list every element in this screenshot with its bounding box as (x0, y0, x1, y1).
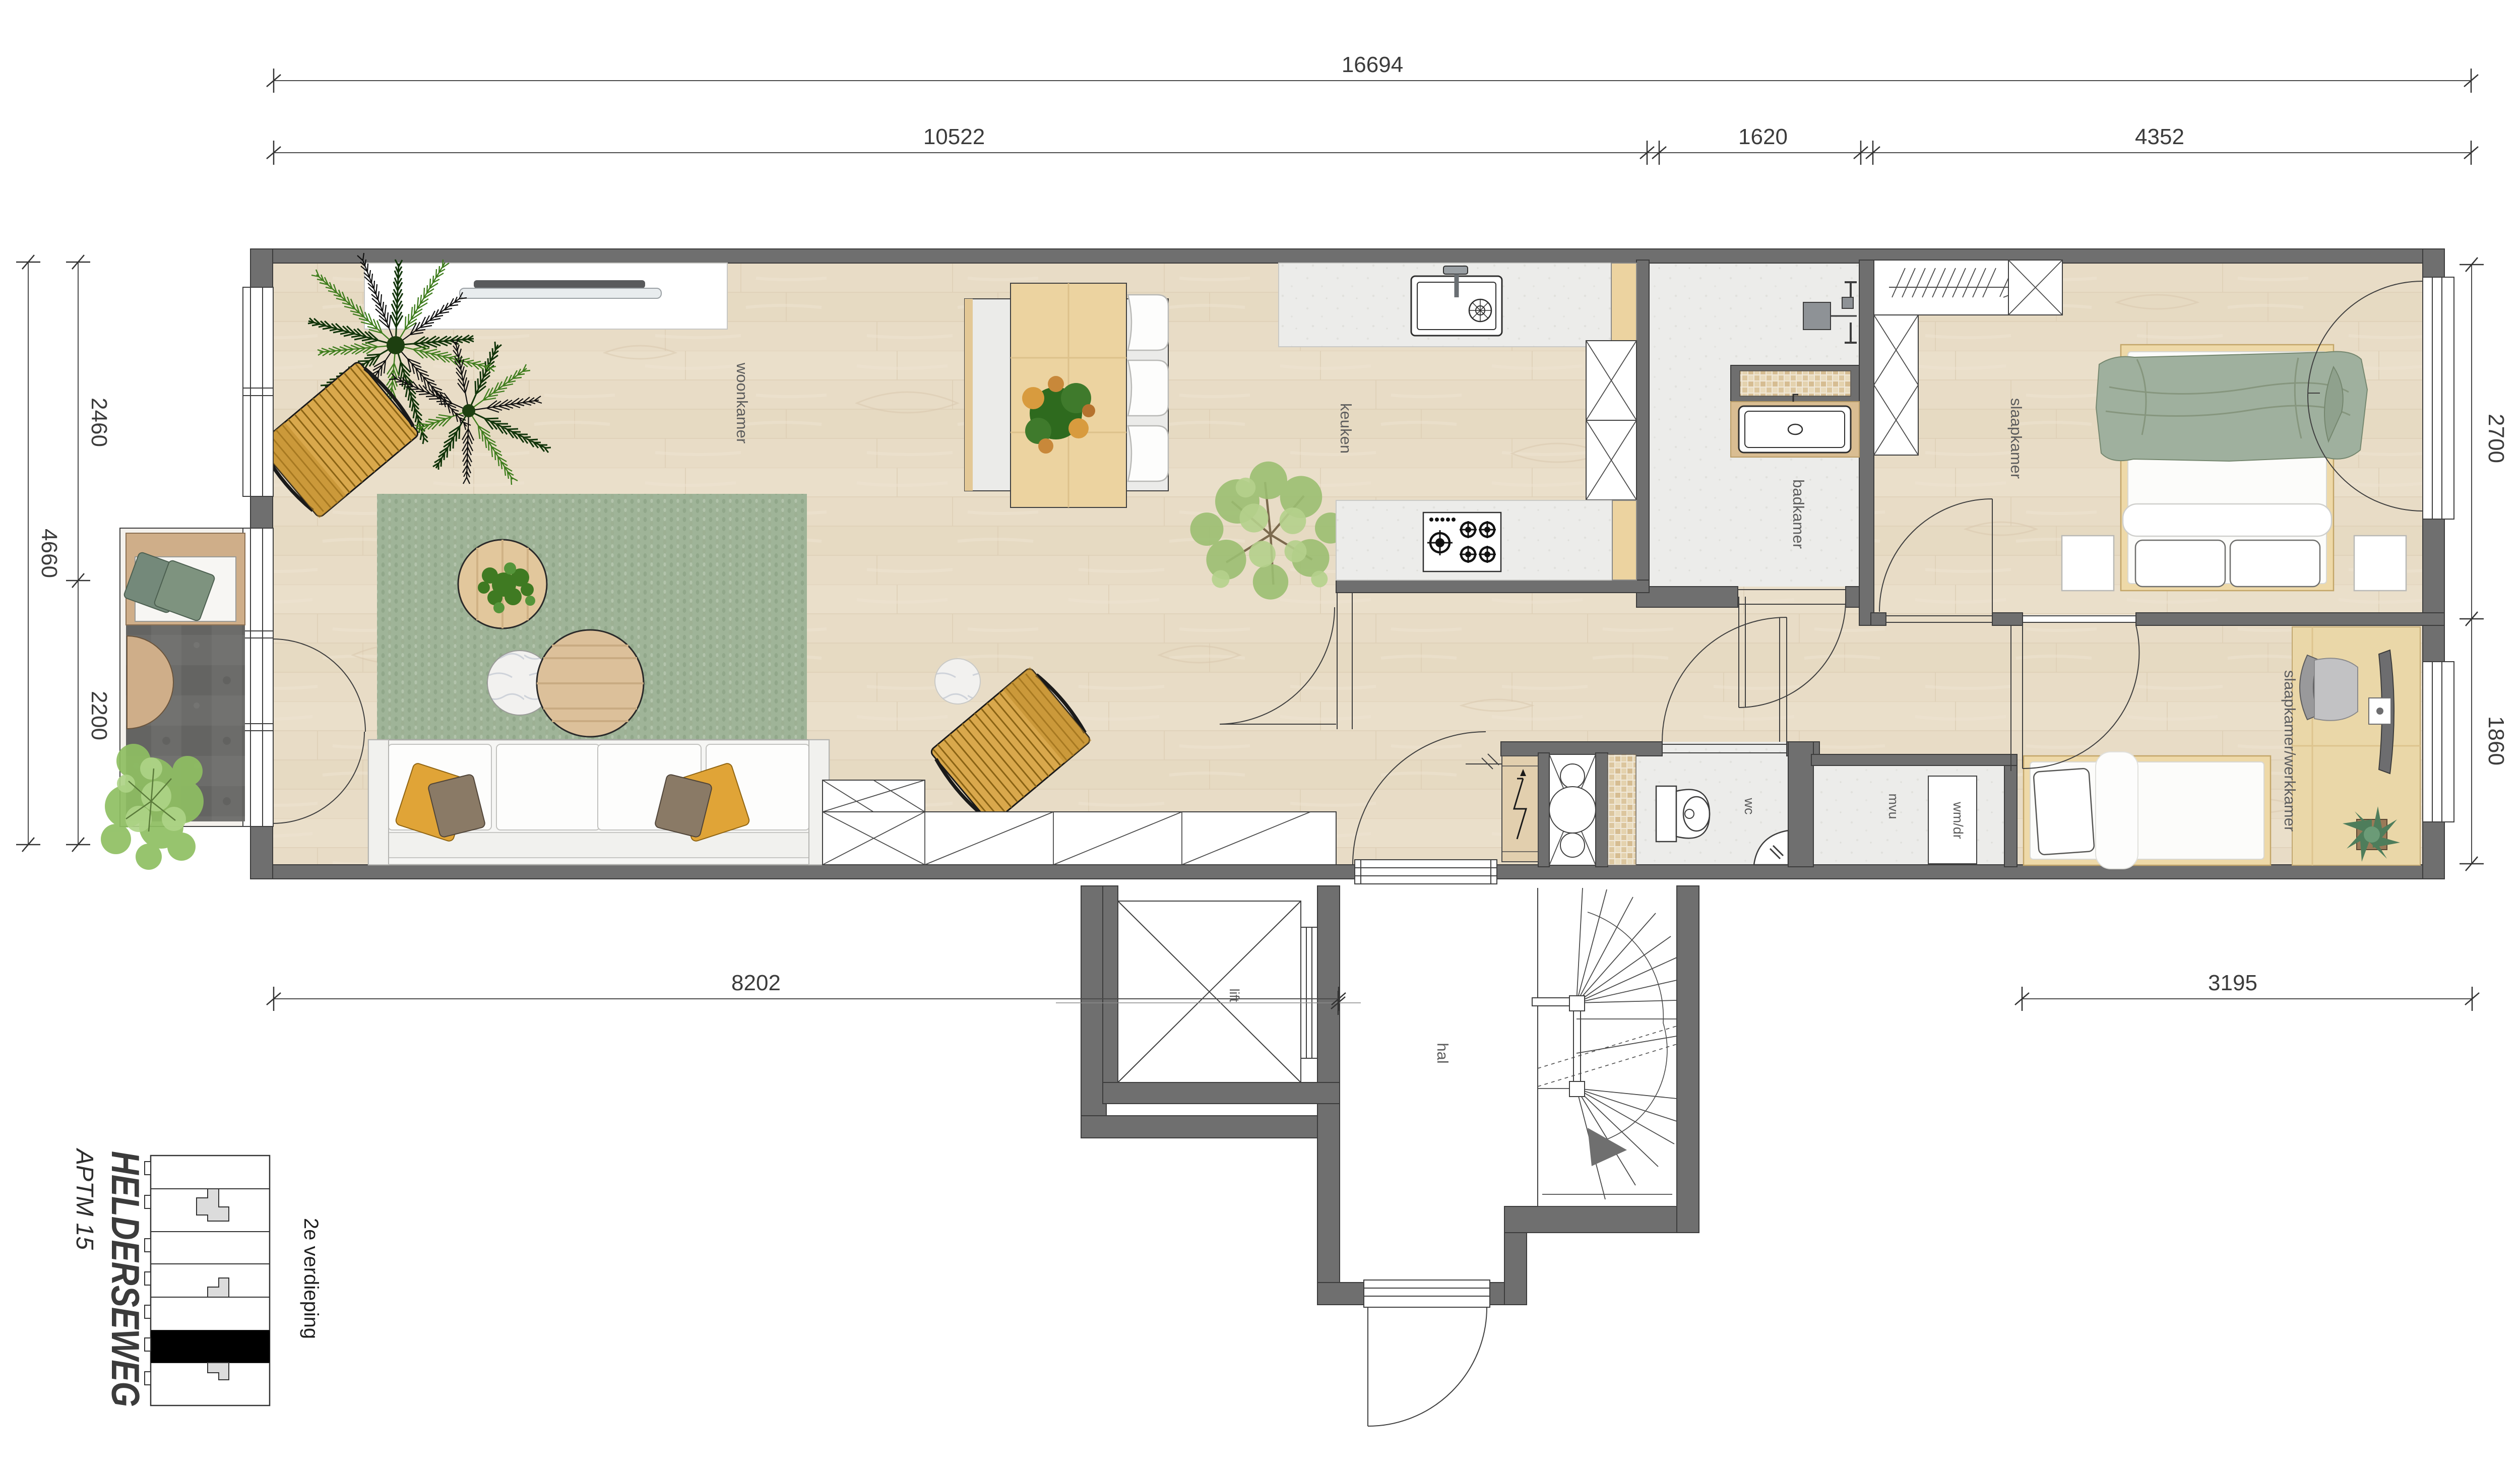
svg-text:badkamer: badkamer (1790, 479, 1807, 549)
svg-text:woonkamer: woonkamer (733, 362, 751, 443)
svg-text:hal: hal (1434, 1043, 1452, 1063)
svg-text:2e verdieping: 2e verdieping (300, 1218, 322, 1339)
svg-text:2200: 2200 (87, 691, 111, 740)
svg-text:1620: 1620 (1738, 124, 1788, 149)
svg-text:HELDERSEWEG: HELDERSEWEG (103, 1151, 148, 1407)
svg-text:3195: 3195 (2208, 971, 2257, 995)
svg-text:8202: 8202 (731, 971, 781, 995)
svg-text:mvu: mvu (1886, 793, 1901, 819)
svg-text:wc: wc (1742, 798, 1757, 815)
svg-text:1860: 1860 (2484, 716, 2508, 765)
svg-text:2700: 2700 (2484, 414, 2508, 463)
svg-text:10522: 10522 (923, 124, 985, 149)
svg-text:APTM 15: APTM 15 (71, 1147, 98, 1250)
svg-text:keuken: keuken (1337, 403, 1355, 454)
svg-text:lift: lift (1227, 989, 1242, 1002)
svg-text:slaapkamer: slaapkamer (2007, 398, 2025, 479)
svg-text:4352: 4352 (2135, 124, 2184, 149)
svg-text:4660: 4660 (37, 529, 61, 578)
svg-text:wm/dr: wm/dr (1950, 801, 1966, 839)
svg-text:2460: 2460 (87, 398, 111, 447)
svg-text:slaapkamer/werkkamer: slaapkamer/werkkamer (2281, 670, 2299, 832)
svg-text:16694: 16694 (1342, 52, 1403, 77)
